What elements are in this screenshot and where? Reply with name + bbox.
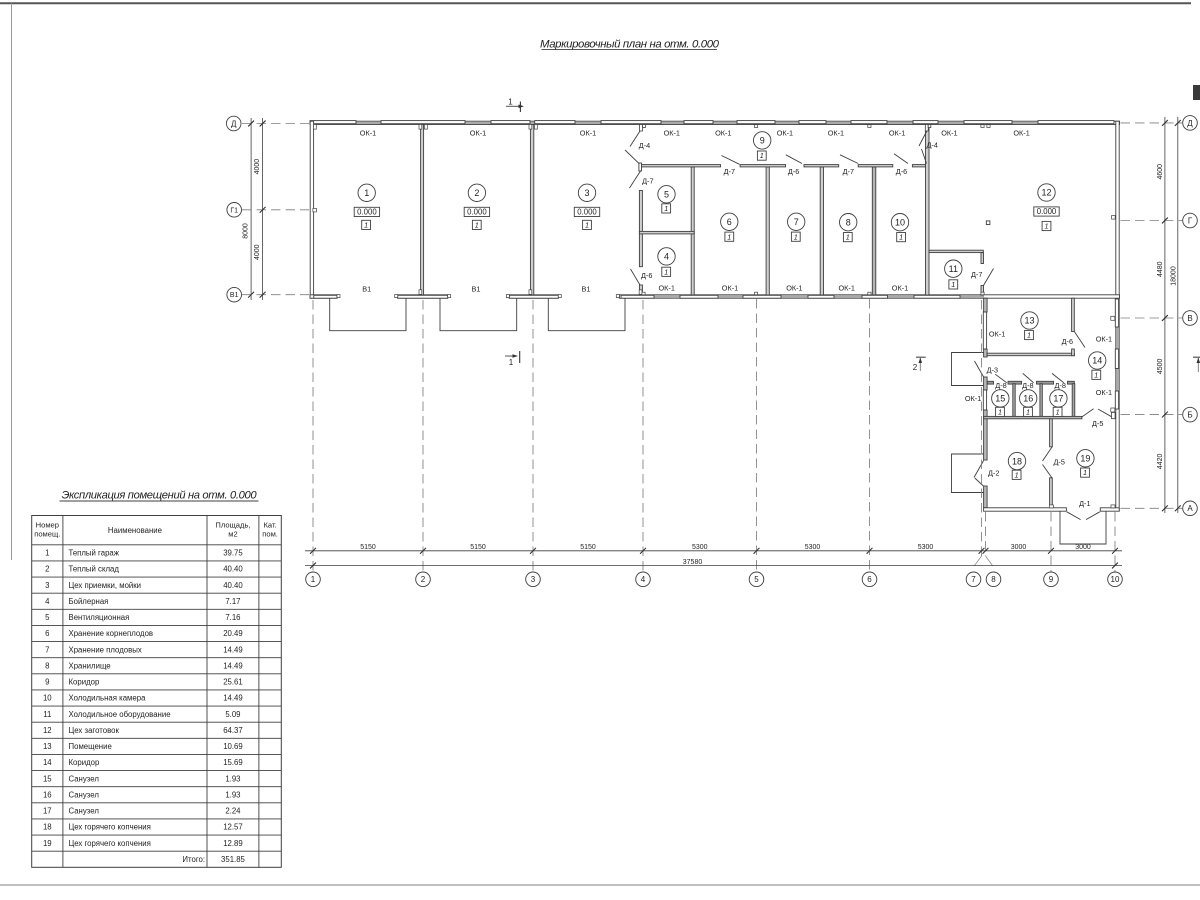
svg-text:Д-5: Д-5 <box>1092 419 1103 428</box>
svg-text:Цех горячего копчения: Цех горячего копчения <box>69 839 151 848</box>
svg-text:19: 19 <box>43 839 52 848</box>
svg-text:11: 11 <box>949 264 958 274</box>
svg-text:7.16: 7.16 <box>225 613 240 622</box>
svg-text:ОК-1: ОК-1 <box>1013 128 1029 137</box>
svg-text:ОК-1: ОК-1 <box>664 128 680 137</box>
svg-text:1: 1 <box>1027 331 1031 340</box>
svg-text:В1: В1 <box>230 292 239 299</box>
svg-text:20.49: 20.49 <box>223 629 243 638</box>
svg-text:Теплый гараж: Теплый гараж <box>69 549 120 558</box>
svg-text:7: 7 <box>971 575 976 584</box>
svg-text:Помещение: Помещение <box>69 742 112 751</box>
svg-text:Д: Д <box>1187 119 1193 128</box>
svg-text:1: 1 <box>1045 222 1049 231</box>
svg-text:Санузел: Санузел <box>69 774 100 783</box>
svg-text:7.17: 7.17 <box>225 597 240 606</box>
svg-text:Площадь,: Площадь, <box>215 521 250 530</box>
svg-text:14.49: 14.49 <box>223 694 243 703</box>
svg-text:14: 14 <box>43 758 52 767</box>
svg-text:40.40: 40.40 <box>223 581 243 590</box>
svg-text:Д-6: Д-6 <box>788 167 799 176</box>
svg-text:1: 1 <box>664 204 668 213</box>
svg-text:8000: 8000 <box>243 223 250 239</box>
svg-text:0.000: 0.000 <box>357 208 377 217</box>
svg-text:Цех горячего копчения: Цех горячего копчения <box>69 823 151 832</box>
svg-text:4420: 4420 <box>1157 454 1164 470</box>
svg-text:15: 15 <box>43 774 52 783</box>
svg-text:Д-8: Д-8 <box>1022 381 1033 390</box>
svg-text:Д-7: Д-7 <box>642 177 653 186</box>
svg-text:1: 1 <box>1056 408 1060 417</box>
svg-text:2: 2 <box>913 363 918 372</box>
svg-text:ОК-1: ОК-1 <box>777 128 793 137</box>
svg-text:Д-7: Д-7 <box>724 167 735 176</box>
svg-text:0.000: 0.000 <box>467 208 487 217</box>
svg-text:13: 13 <box>43 742 52 751</box>
svg-text:1: 1 <box>899 233 903 242</box>
svg-text:Д-6: Д-6 <box>641 271 652 280</box>
svg-text:Д-7: Д-7 <box>971 270 982 279</box>
svg-text:Коридор: Коридор <box>69 678 100 687</box>
svg-text:5300: 5300 <box>692 544 708 551</box>
svg-text:Итого:: Итого: <box>182 855 205 864</box>
svg-text:1: 1 <box>364 221 368 230</box>
svg-text:1.93: 1.93 <box>225 774 240 783</box>
svg-text:Д-6: Д-6 <box>896 167 907 176</box>
svg-text:ОК-1: ОК-1 <box>838 284 854 293</box>
svg-text:В1: В1 <box>472 285 481 294</box>
svg-text:9: 9 <box>45 678 49 687</box>
svg-text:В1: В1 <box>362 285 371 294</box>
svg-text:Д: Д <box>231 119 237 128</box>
svg-text:18000: 18000 <box>1170 266 1177 286</box>
svg-text:1: 1 <box>998 408 1002 417</box>
svg-text:5150: 5150 <box>580 544 596 551</box>
svg-text:Хранилище: Хранилище <box>69 661 111 670</box>
svg-text:Теплый склад: Теплый склад <box>69 565 120 574</box>
svg-text:2: 2 <box>421 575 426 584</box>
svg-text:11: 11 <box>43 710 51 719</box>
svg-text:ОК-1: ОК-1 <box>715 128 731 137</box>
svg-text:4000: 4000 <box>254 244 261 260</box>
svg-text:10: 10 <box>895 217 905 227</box>
svg-text:12.89: 12.89 <box>223 839 243 848</box>
svg-text:7: 7 <box>794 217 799 227</box>
svg-text:ОК-1: ОК-1 <box>828 128 844 137</box>
svg-text:6: 6 <box>867 575 872 584</box>
svg-text:ОК-1: ОК-1 <box>580 128 596 137</box>
svg-text:Д-4: Д-4 <box>926 141 937 150</box>
svg-text:помещ.: помещ. <box>34 530 60 539</box>
svg-text:Коридор: Коридор <box>69 758 100 767</box>
svg-text:Д-4: Д-4 <box>639 141 650 150</box>
svg-text:7: 7 <box>45 645 49 654</box>
svg-text:ОК-1: ОК-1 <box>722 284 738 293</box>
svg-text:ОК-1: ОК-1 <box>892 284 908 293</box>
svg-text:Д-3: Д-3 <box>987 365 998 374</box>
svg-text:9: 9 <box>760 136 765 146</box>
svg-text:1: 1 <box>311 575 316 584</box>
svg-text:19: 19 <box>1080 454 1090 464</box>
svg-text:Д-6: Д-6 <box>1062 337 1073 346</box>
svg-text:64.37: 64.37 <box>223 726 243 735</box>
svg-text:5: 5 <box>754 575 759 584</box>
svg-text:10: 10 <box>43 694 52 703</box>
svg-text:ОК-1: ОК-1 <box>941 128 957 137</box>
svg-text:Экспликация помещений на отм.: Экспликация помещений на отм. 0.000 <box>62 490 258 502</box>
svg-text:40.40: 40.40 <box>223 565 243 574</box>
svg-text:Маркировочный план на отм. 0.0: Маркировочный план на отм. 0.000 <box>540 38 720 50</box>
svg-text:13: 13 <box>1024 316 1034 326</box>
svg-text:4: 4 <box>45 597 50 606</box>
svg-text:8: 8 <box>846 217 851 227</box>
svg-text:14.49: 14.49 <box>223 661 243 670</box>
svg-text:1.93: 1.93 <box>225 790 240 799</box>
svg-text:ОК-1: ОК-1 <box>989 330 1005 339</box>
svg-text:Д-8: Д-8 <box>1054 381 1065 390</box>
svg-text:Хранение корнеплодов: Хранение корнеплодов <box>69 629 154 638</box>
svg-text:Бойлерная: Бойлерная <box>69 597 109 606</box>
svg-text:5150: 5150 <box>470 544 486 551</box>
svg-text:14.49: 14.49 <box>223 645 243 654</box>
svg-text:Наименование: Наименование <box>108 526 162 535</box>
svg-text:Цех заготовок: Цех заготовок <box>69 726 120 735</box>
svg-text:1: 1 <box>1094 370 1098 379</box>
svg-text:4000: 4000 <box>254 159 261 175</box>
svg-text:16: 16 <box>1023 394 1033 404</box>
svg-text:0.000: 0.000 <box>577 208 597 217</box>
svg-text:1: 1 <box>727 232 731 241</box>
svg-text:8: 8 <box>991 575 996 584</box>
svg-text:ОК-1: ОК-1 <box>1096 388 1112 397</box>
svg-text:Д-5: Д-5 <box>1053 458 1064 467</box>
svg-text:м2: м2 <box>228 530 237 539</box>
svg-text:пом.: пом. <box>262 530 278 539</box>
svg-text:0.000: 0.000 <box>1037 207 1057 216</box>
svg-text:5: 5 <box>664 190 669 200</box>
svg-text:1: 1 <box>951 280 955 289</box>
svg-text:1: 1 <box>508 97 513 106</box>
svg-text:ОК-1: ОК-1 <box>965 394 981 403</box>
svg-text:4600: 4600 <box>1157 164 1164 180</box>
svg-text:Номер: Номер <box>36 521 59 530</box>
svg-text:3: 3 <box>45 581 49 590</box>
svg-text:ОК-1: ОК-1 <box>889 128 905 137</box>
svg-text:5300: 5300 <box>918 544 934 551</box>
svg-text:5.09: 5.09 <box>225 710 240 719</box>
svg-text:1: 1 <box>760 151 764 160</box>
svg-text:4: 4 <box>641 575 646 584</box>
svg-text:Г: Г <box>1188 216 1193 225</box>
svg-text:6: 6 <box>45 629 49 638</box>
svg-text:4500: 4500 <box>1157 359 1164 375</box>
svg-text:Г1: Г1 <box>230 207 238 214</box>
svg-text:Кат.: Кат. <box>263 521 276 530</box>
svg-text:1: 1 <box>846 233 850 242</box>
svg-text:15: 15 <box>995 394 1005 404</box>
svg-text:18: 18 <box>1012 456 1022 466</box>
svg-text:17: 17 <box>1053 394 1063 404</box>
svg-text:12.57: 12.57 <box>223 823 243 832</box>
svg-text:1: 1 <box>509 358 514 367</box>
svg-text:1: 1 <box>1015 470 1019 479</box>
svg-text:16: 16 <box>43 790 52 799</box>
svg-text:17: 17 <box>43 807 52 816</box>
svg-text:4480: 4480 <box>1157 261 1164 277</box>
svg-text:2: 2 <box>474 188 479 198</box>
svg-text:Д-1: Д-1 <box>1079 499 1090 508</box>
svg-text:1: 1 <box>794 232 798 241</box>
svg-text:Д-8: Д-8 <box>995 381 1006 390</box>
svg-text:Б: Б <box>1187 411 1192 420</box>
svg-text:3000: 3000 <box>1075 544 1091 551</box>
svg-text:Д-7: Д-7 <box>843 167 854 176</box>
svg-text:А: А <box>1187 504 1193 513</box>
svg-text:39.75: 39.75 <box>223 549 243 558</box>
svg-text:25.61: 25.61 <box>223 678 243 687</box>
svg-text:3: 3 <box>584 188 589 198</box>
svg-text:10.69: 10.69 <box>223 742 243 751</box>
svg-text:В1: В1 <box>582 285 591 294</box>
svg-text:3: 3 <box>531 575 536 584</box>
svg-text:ОК-1: ОК-1 <box>1096 335 1112 344</box>
svg-text:18: 18 <box>43 823 52 832</box>
svg-text:1: 1 <box>1083 468 1087 477</box>
svg-text:Д-2: Д-2 <box>988 469 999 478</box>
svg-text:Холодильное оборудование: Холодильное оборудование <box>69 710 171 719</box>
svg-text:1: 1 <box>585 221 589 230</box>
svg-text:14: 14 <box>1092 356 1102 366</box>
svg-text:3000: 3000 <box>1011 544 1027 551</box>
svg-text:5300: 5300 <box>805 544 821 551</box>
svg-text:1: 1 <box>364 188 369 198</box>
svg-text:Хранение плодовых: Хранение плодовых <box>69 645 142 654</box>
svg-text:1: 1 <box>45 549 49 558</box>
svg-text:6: 6 <box>727 217 732 227</box>
svg-text:2.24: 2.24 <box>225 807 241 816</box>
svg-text:8: 8 <box>45 661 49 670</box>
svg-text:9: 9 <box>1049 575 1054 584</box>
svg-text:Санузел: Санузел <box>69 790 100 799</box>
svg-text:1: 1 <box>664 267 668 276</box>
svg-text:ОК-1: ОК-1 <box>658 284 674 293</box>
svg-text:12: 12 <box>43 726 52 735</box>
svg-text:1: 1 <box>1026 408 1030 417</box>
svg-text:Цех приемки, мойки: Цех приемки, мойки <box>69 581 142 590</box>
svg-text:5: 5 <box>45 613 50 622</box>
svg-text:Вентиляционная: Вентиляционная <box>69 613 130 622</box>
svg-text:ОК-1: ОК-1 <box>470 128 486 137</box>
svg-text:1: 1 <box>475 221 479 230</box>
svg-text:5150: 5150 <box>360 544 376 551</box>
svg-text:ОК-1: ОК-1 <box>360 128 376 137</box>
svg-text:Санузел: Санузел <box>69 807 100 816</box>
svg-text:12: 12 <box>1041 188 1051 198</box>
svg-text:15.69: 15.69 <box>223 758 243 767</box>
svg-text:10: 10 <box>1111 575 1120 584</box>
svg-text:В: В <box>1187 314 1192 323</box>
svg-text:ОК-1: ОК-1 <box>786 284 802 293</box>
svg-text:Холодильная камера: Холодильная камера <box>69 694 147 703</box>
svg-text:351.85: 351.85 <box>221 855 246 864</box>
svg-text:37580: 37580 <box>683 559 703 566</box>
svg-text:4: 4 <box>664 252 669 262</box>
svg-text:2: 2 <box>45 565 49 574</box>
